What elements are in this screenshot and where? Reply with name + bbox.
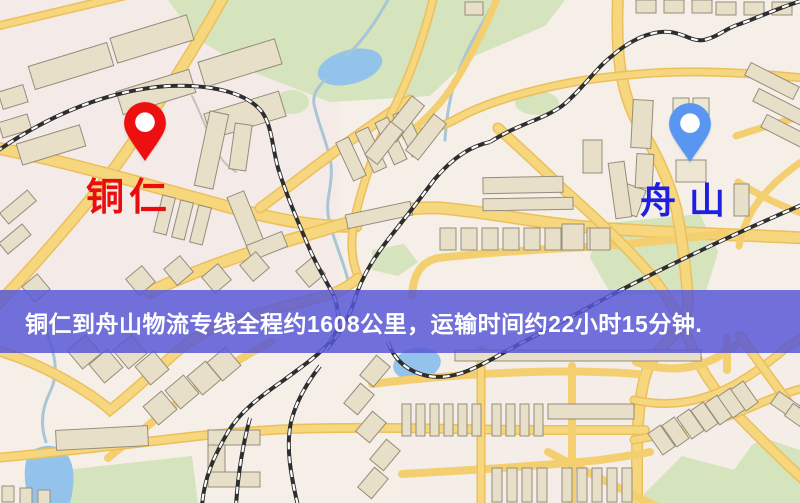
building: [465, 2, 483, 15]
building: [592, 468, 602, 502]
building: [583, 140, 602, 173]
building: [522, 468, 532, 502]
building: [524, 228, 540, 250]
building: [590, 228, 610, 250]
route-banner: 铜仁到舟山物流专线全程约1608公里，运输时间约22小时15分钟.: [0, 290, 800, 353]
building: [506, 404, 515, 436]
building: [208, 472, 260, 487]
building: [631, 100, 653, 149]
building: [503, 228, 519, 250]
building: [472, 404, 481, 436]
building: [483, 176, 563, 193]
building: [744, 2, 764, 15]
logistics-route-map: 铜仁 舟山 铜仁到舟山物流专线全程约1608公里，运输时间约22小时15分钟.: [0, 0, 800, 503]
building: [461, 228, 477, 250]
building: [545, 228, 561, 250]
building: [492, 468, 502, 502]
building: [416, 404, 425, 436]
destination-pin-icon[interactable]: [667, 99, 713, 167]
route-banner-text: 铜仁到舟山物流专线全程约1608公里，运输时间约22小时15分钟.: [25, 305, 702, 339]
building: [20, 488, 32, 503]
building: [622, 468, 632, 502]
building: [458, 404, 467, 436]
building: [636, 0, 656, 13]
building: [607, 468, 617, 502]
building: [507, 468, 517, 502]
building: [577, 468, 587, 502]
building: [56, 426, 149, 451]
building: [548, 404, 634, 419]
destination-label: 舟山: [640, 183, 738, 219]
building: [440, 228, 456, 250]
building: [430, 404, 439, 436]
building: [483, 197, 573, 211]
building: [482, 228, 498, 250]
origin-label: 铜仁: [86, 179, 172, 217]
origin-pin-icon[interactable]: [122, 97, 168, 167]
building: [692, 0, 712, 13]
building: [562, 468, 572, 502]
building: [537, 468, 547, 502]
map-canvas: [0, 0, 800, 503]
building: [492, 404, 501, 436]
building: [664, 0, 684, 13]
building: [562, 224, 584, 250]
building: [520, 404, 529, 436]
building: [534, 404, 543, 436]
building: [38, 490, 50, 503]
building: [402, 404, 411, 436]
building: [208, 430, 260, 445]
building: [444, 404, 453, 436]
building: [716, 2, 736, 15]
building: [2, 486, 14, 502]
